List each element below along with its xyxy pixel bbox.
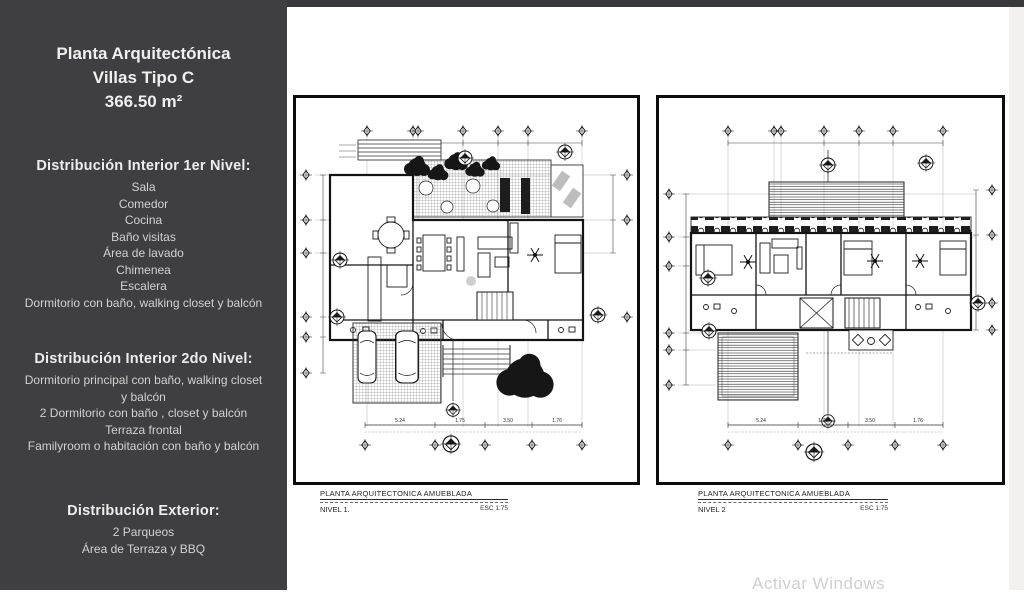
floorplan-nivel1-sheet: 5.24 1.75 3.50 1.76 <box>293 95 640 485</box>
caption-divider <box>698 500 888 503</box>
dim-label: 5.24 <box>395 418 405 424</box>
section-interior-nivel2: Distribución Interior 2do Nivel: Dormito… <box>0 351 287 455</box>
dim-label: 3.50 <box>503 418 513 424</box>
list-item: Área de Terraza y BBQ <box>0 541 287 558</box>
title-line-3: 366.50 m² <box>0 90 287 114</box>
parking-area <box>353 323 441 403</box>
garage-roof <box>718 333 798 400</box>
list-item: Escalera <box>0 278 287 295</box>
page-title: Planta Arquitectónica Villas Tipo C 366.… <box>0 42 287 114</box>
list-item: 2 Dormitorio con baño , closet y balcón <box>0 405 287 422</box>
floorplan-nivel2-sheet: 5.24 1.75 3.50 1.76 <box>656 95 1005 485</box>
dim-label: 1.76 <box>552 418 562 424</box>
sidebar: Planta Arquitectónica Villas Tipo C 366.… <box>0 0 287 590</box>
window-planter-band <box>691 217 971 233</box>
list-item: Cocina <box>0 212 287 229</box>
plan2-scale-label: ESC 1:75 <box>860 505 888 514</box>
dim-label: 1.75 <box>455 418 465 424</box>
list-item: Comedor <box>0 196 287 213</box>
activation-watermark: Activar Windows <box>752 574 885 594</box>
section-heading: Distribución Interior 1er Nivel: <box>0 158 287 174</box>
dim-label: 1.75 <box>818 418 828 424</box>
section-heading: Distribución Exterior: <box>0 503 287 519</box>
plan1-scale-label: ESC 1:75 <box>480 505 508 514</box>
section-interior-nivel1: Distribución Interior 1er Nivel: Sala Co… <box>0 158 287 311</box>
stairs <box>477 292 513 320</box>
plan2-caption-title: PLANTA ARQUITECTONICA AMUEBLADA <box>698 489 888 500</box>
list-item: Dormitorio con baño, walking closet y ba… <box>0 295 287 312</box>
plan2-level-label: NIVEL 2 <box>698 505 726 514</box>
list-item: Terraza frontal <box>0 422 287 439</box>
section-heading: Distribución Interior 2do Nivel: <box>0 351 287 367</box>
list-item: Baño visitas <box>0 229 287 246</box>
floorplan-nivel2-drawing: 5.24 1.75 3.50 1.76 <box>656 95 1005 485</box>
list-item: Chimenea <box>0 262 287 279</box>
section-exterior: Distribución Exterior: 2 Parqueos Área d… <box>0 503 287 557</box>
list-item: Sala <box>0 179 287 196</box>
lounge-terrace <box>551 165 583 217</box>
plan1-caption: PLANTA ARQUITECTONICA AMUEBLADA NIVEL 1.… <box>320 489 508 514</box>
caption-divider <box>320 500 508 503</box>
right-edge-strip <box>1009 7 1024 590</box>
plan1-level-label: NIVEL 1. <box>320 505 350 514</box>
list-item: Dormitorio principal con baño, walking c… <box>0 372 287 405</box>
top-border-strip <box>287 0 1024 7</box>
title-line-1: Planta Arquitectónica <box>0 42 287 66</box>
dim-label: 1.76 <box>913 418 923 424</box>
plan1-caption-title: PLANTA ARQUITECTONICA AMUEBLADA <box>320 489 508 500</box>
list-item: Familyroom o habitación con baño y balcó… <box>0 438 287 455</box>
dim-label: 3.50 <box>865 418 875 424</box>
plan2-caption: PLANTA ARQUITECTONICA AMUEBLADA NIVEL 2 … <box>698 489 888 514</box>
title-line-2: Villas Tipo C <box>0 66 287 90</box>
floorplan-nivel1-drawing: 5.24 1.75 3.50 1.76 <box>293 95 640 485</box>
pergola-roof <box>769 182 904 217</box>
list-item: Área de lavado <box>0 245 287 262</box>
list-item: 2 Parqueos <box>0 524 287 541</box>
dim-label: 5.24 <box>756 418 766 424</box>
